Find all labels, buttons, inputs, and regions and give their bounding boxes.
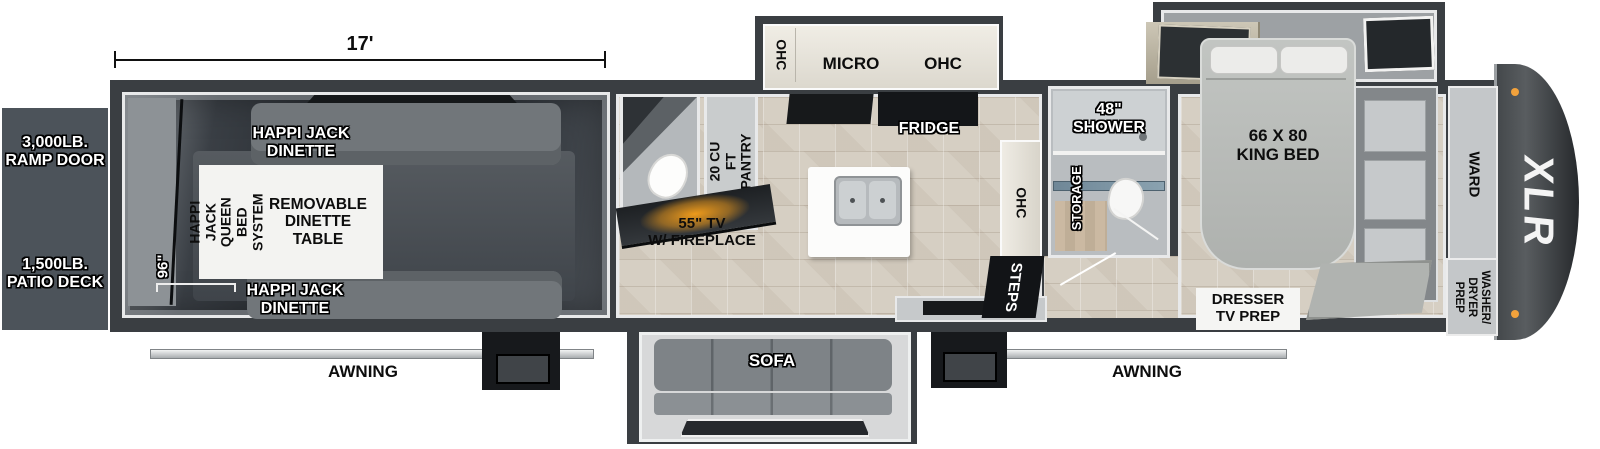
garage-width-dim-tick — [156, 283, 158, 292]
shower-label: 48" SHOWER — [1057, 101, 1161, 137]
patio-deck-label: 1,500LB. PATIO DECK — [2, 256, 108, 292]
ramp-patio-deck: 3,000LB. RAMP DOOR 1,500LB. PATIO DECK — [2, 108, 108, 330]
marker-light-icon — [1511, 310, 1519, 318]
king-bed: 66 X 80 KING BED — [1200, 38, 1356, 270]
wardrobe-panel — [1364, 160, 1426, 220]
pillow — [1280, 46, 1348, 74]
garage-width-dimension-label: 96" — [156, 254, 173, 278]
dimension-tick-right — [604, 51, 606, 68]
fridge-label: FRIDGE — [874, 120, 984, 138]
ohc-left-label: OHC — [773, 39, 789, 70]
kitchen-island — [808, 167, 910, 257]
wardrobe-closet: WARD — [1448, 86, 1498, 262]
dinette-top-label: HAPPI JACK DINETTE — [231, 125, 371, 161]
hallway-floor — [1044, 256, 1180, 318]
bed-seam — [1206, 78, 1346, 80]
ohc-left-wrap: OHC — [767, 28, 796, 82]
kitchen-overhead-cabinet: OHC MICRO OHC — [763, 24, 999, 90]
washer-dryer-label: WASHER/ DRYER PREP — [1453, 270, 1492, 324]
side-overhead-cabinet: OHC — [1000, 140, 1042, 266]
sofa-label: SOFA — [702, 351, 842, 370]
bathroom: 48" SHOWER STORAGE — [1048, 86, 1170, 258]
sofa-seat-cushions — [654, 393, 892, 415]
pantry-label: 20 CU FT PANTRY — [707, 134, 754, 190]
xlr-logo: XLR — [1514, 153, 1562, 251]
washer-dryer-prep: WASHER/ DRYER PREP — [1446, 258, 1498, 336]
sink-bowl — [839, 181, 866, 219]
front-cap: XLR — [1494, 64, 1579, 340]
marker-light-icon — [1511, 88, 1519, 96]
floorplan-canvas: 17' 3,000LB. RAMP DOOR 1,500LB. PATIO DE… — [0, 0, 1600, 449]
steps: STEPS — [982, 256, 1045, 318]
awning-left-label: AWNING — [308, 362, 418, 381]
dinette-bottom-label: HAPPI JACK DINETTE — [225, 282, 365, 318]
queen-bed-system-label-wrap: HAPPI JACK QUEEN BED SYSTEM — [199, 165, 255, 279]
sink-drain-icon — [880, 198, 885, 203]
wardrobe-panel — [1364, 100, 1426, 152]
ohc-side-label: OHC — [1013, 187, 1029, 218]
entry-step-right-tread — [943, 352, 997, 382]
tv-lift-panel — [1306, 260, 1432, 320]
dimension-tick-left — [114, 51, 116, 68]
sink-drain-icon — [850, 198, 855, 203]
sink-bowl — [869, 181, 896, 219]
dinette-table: HAPPI JACK QUEEN BED SYSTEM REMOVABLE DI… — [199, 165, 383, 279]
sofa-slide-window — [680, 419, 870, 437]
toilet — [643, 149, 693, 202]
garage-width-dim-line — [156, 283, 236, 285]
sofa-slideout-room: SOFA — [639, 332, 911, 442]
ward-label: WARD — [1465, 151, 1482, 197]
awning-right-label: AWNING — [1092, 362, 1202, 381]
entry-step-left — [482, 332, 560, 390]
dresser-tv-prep-label: DRESSER TV PREP — [1196, 288, 1300, 330]
double-sink — [834, 176, 902, 226]
pillow — [1210, 46, 1278, 74]
entry-step-right — [931, 332, 1007, 388]
king-bed-label: 66 X 80 KING BED — [1216, 126, 1340, 164]
dinette-table-label: REMOVABLE DINETTE TABLE — [255, 174, 381, 270]
garage-room: HAPPI JACK QUEEN BED SYSTEM REMOVABLE DI… — [122, 92, 610, 318]
entry-step-left-tread — [496, 354, 550, 384]
ohc-right-label: OHC — [907, 54, 979, 73]
garage-width-dim-tick — [234, 283, 236, 292]
garage-length-dimension-label: 17' — [115, 33, 605, 55]
ramp-door-label: 3,000LB. RAMP DOOR — [2, 134, 108, 170]
tv-fireplace-label: 55" TV W/ FIREPLACE — [622, 216, 782, 250]
storage-label: STORAGE — [1070, 166, 1085, 230]
storage-label-wrap: STORAGE — [1065, 151, 1089, 245]
range-cooktop — [786, 94, 873, 124]
steps-label: STEPS — [1001, 262, 1025, 311]
bedroom-window — [1363, 16, 1435, 72]
micro-label: MICRO — [801, 54, 901, 73]
dimension-line — [115, 59, 605, 61]
